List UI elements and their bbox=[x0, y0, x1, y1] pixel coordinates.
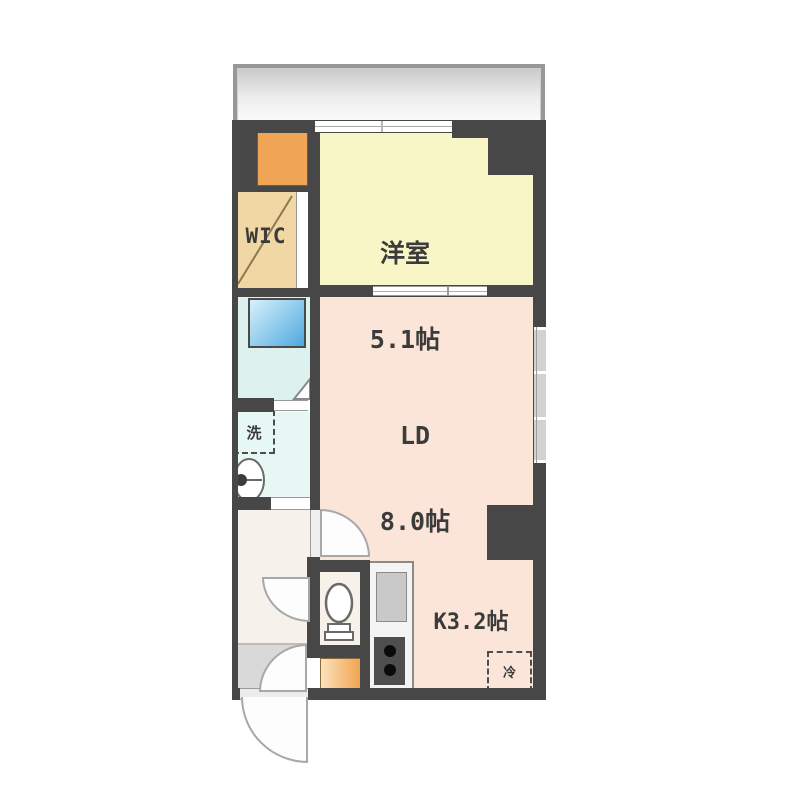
wall-ld-left bbox=[310, 285, 320, 510]
balcony bbox=[233, 64, 545, 126]
wall-notch-large bbox=[488, 120, 533, 175]
wall-wic-bottom bbox=[232, 288, 310, 297]
stove-burner-icon bbox=[384, 664, 396, 676]
wall-bath-washroom bbox=[232, 398, 274, 412]
refrigerator-label: 冷 bbox=[503, 662, 516, 681]
wic-door-strip bbox=[296, 192, 308, 288]
ld-name: LD bbox=[340, 422, 490, 451]
hall-ld-frame bbox=[310, 510, 320, 557]
stove-icon bbox=[374, 637, 405, 685]
window-line bbox=[536, 327, 537, 463]
door-arc-front-door bbox=[241, 697, 308, 763]
western-room-size: 5.1帖 bbox=[330, 326, 480, 355]
wic-label: WIC bbox=[238, 224, 294, 248]
window-line bbox=[315, 126, 452, 127]
closet-orange-box bbox=[257, 131, 308, 186]
wall-wic-top bbox=[234, 186, 308, 192]
shoe-cabinet bbox=[320, 658, 362, 690]
wall-pillar-right bbox=[487, 505, 533, 560]
floor-plan: 洗 冷 bbox=[0, 0, 800, 800]
stove-burner-icon bbox=[384, 645, 396, 657]
wall-left-column-right bbox=[308, 120, 320, 297]
western-room-name: 洋室 bbox=[330, 240, 480, 269]
washroom-door-opening bbox=[274, 400, 308, 411]
window-tick bbox=[381, 121, 383, 132]
kitchen-label: K3.2帖 bbox=[415, 610, 527, 635]
ld-size: 8.0帖 bbox=[340, 508, 490, 537]
wall-washroom-bottom bbox=[232, 497, 271, 510]
ld-label: LD 8.0帖 bbox=[340, 364, 490, 594]
wall-toilet-bottom bbox=[307, 645, 362, 658]
refrigerator-space: 冷 bbox=[487, 651, 532, 692]
laundry-space: 洗 bbox=[233, 410, 275, 454]
window-top bbox=[315, 121, 452, 132]
wall-notch-small bbox=[452, 120, 488, 138]
wall-corner-top-left bbox=[232, 120, 257, 192]
laundry-label: 洗 bbox=[246, 422, 261, 443]
bathtub-icon bbox=[248, 298, 306, 348]
window-right bbox=[534, 327, 546, 463]
bathroom-door-triangle-icon bbox=[291, 376, 312, 401]
